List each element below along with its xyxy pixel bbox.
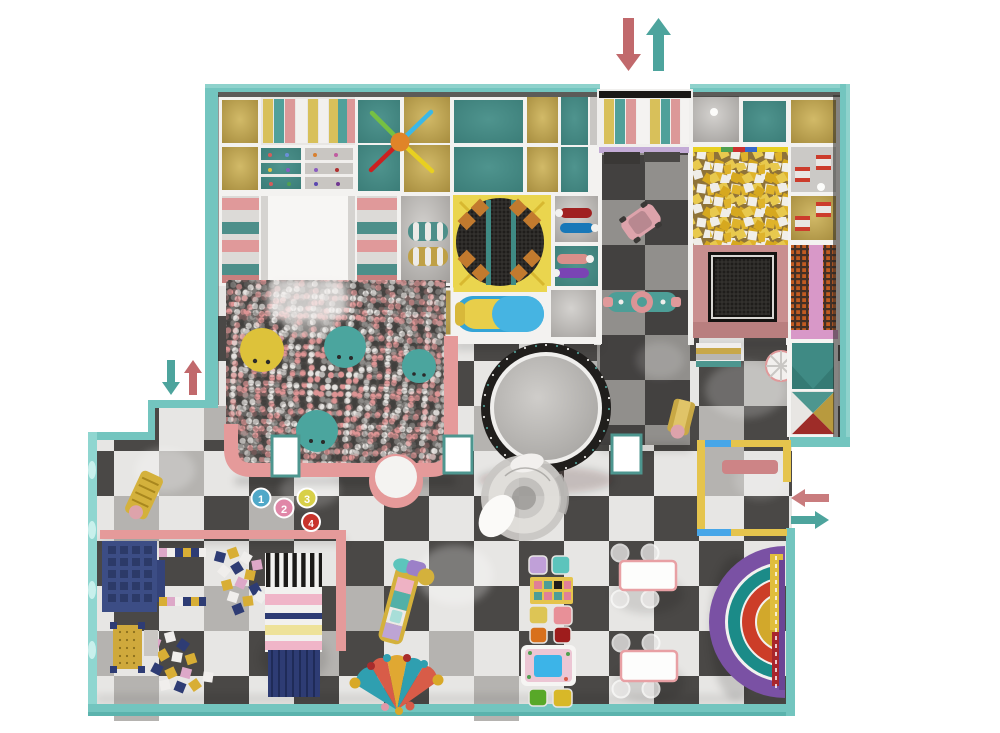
svg-text:2: 2 — [281, 504, 287, 516]
svg-text:4: 4 — [308, 519, 314, 530]
svg-text:3: 3 — [304, 494, 310, 506]
svg-text:1: 1 — [258, 494, 264, 506]
